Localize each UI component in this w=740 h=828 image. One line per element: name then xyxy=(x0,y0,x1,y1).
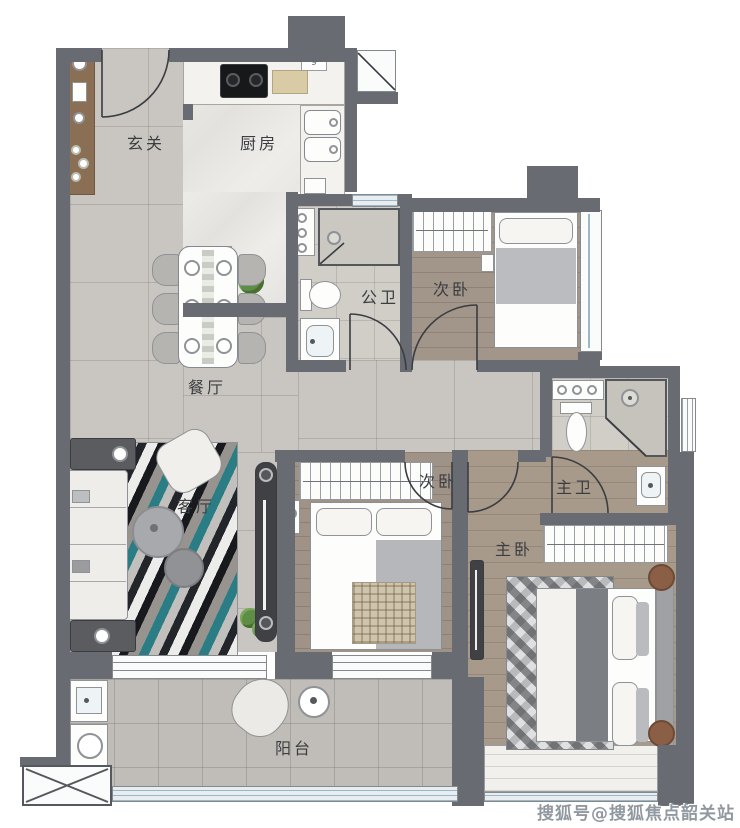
floor-plan: 9 xyxy=(0,0,740,828)
shower-door-line xyxy=(320,243,344,264)
bedroom-top-door-arc xyxy=(412,305,477,370)
bedroom-mid-door-arc xyxy=(405,462,452,509)
public-bath-door-arc xyxy=(350,314,406,370)
door-swing-layer xyxy=(0,0,740,828)
ac-platform-cross xyxy=(26,769,108,802)
flue-diagonal xyxy=(358,53,395,90)
master-bedroom-door-arc xyxy=(468,462,518,512)
shower-head-dot xyxy=(628,396,632,400)
entry-door-arc xyxy=(102,50,169,117)
watermark-text: 搜狐号@搜狐焦点韶关站 xyxy=(537,799,735,824)
master-shower xyxy=(606,380,666,456)
master-bath-door-arc xyxy=(552,457,608,513)
